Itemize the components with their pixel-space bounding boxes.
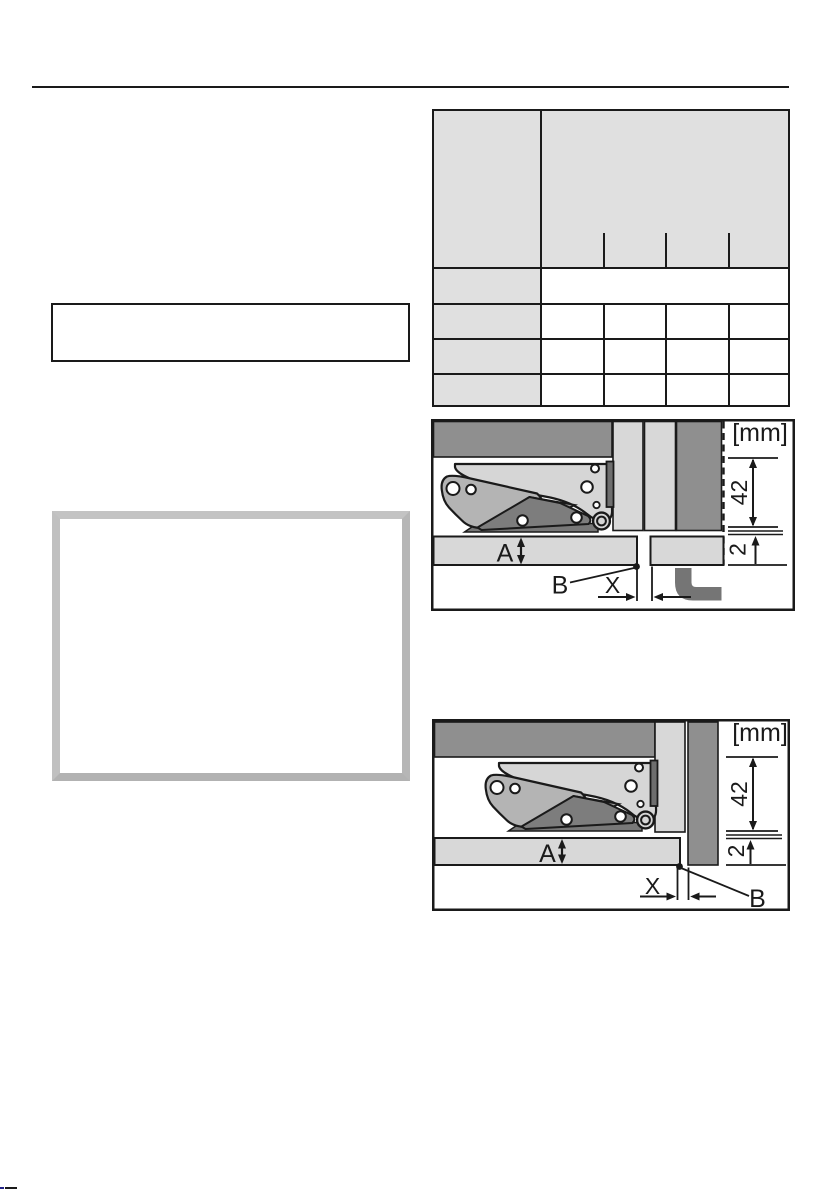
- svg-text:A: A: [539, 840, 556, 868]
- table-left-column: [434, 111, 540, 405]
- table-column-divider: [540, 111, 542, 405]
- svg-text:X: X: [645, 873, 660, 899]
- hinge-diagram-bottom: 42 2 [mm] A B X: [432, 719, 790, 911]
- svg-text:B: B: [552, 572, 569, 600]
- hinge-assembly: [486, 761, 658, 832]
- spec-table: [432, 109, 790, 407]
- svg-text:42: 42: [726, 480, 752, 506]
- appliance-door-panel-2: [645, 422, 676, 531]
- table-body-column-line: [665, 305, 667, 405]
- appliance-door-panel: [613, 422, 643, 531]
- corner-mark-blue: [0, 1187, 4, 1189]
- cabinet-top-panel: [435, 722, 656, 757]
- table-header-tick: [728, 233, 730, 267]
- base-panel-right: [651, 537, 724, 566]
- hinge-assembly: [442, 462, 614, 533]
- table-header-tick: [603, 233, 605, 267]
- svg-text:2: 2: [723, 845, 749, 858]
- table-row-line: [434, 373, 788, 375]
- furniture-door-panel: [677, 422, 722, 531]
- appliance-door-panel: [655, 722, 685, 832]
- table-row-line: [434, 267, 788, 269]
- image-frame: [52, 511, 410, 781]
- svg-text:2: 2: [725, 543, 751, 556]
- note-box: [51, 303, 410, 362]
- table-row-line: [434, 303, 788, 305]
- header-rule: [32, 86, 789, 88]
- unit-label: [mm]: [732, 719, 788, 747]
- hinge-diagram-top: 42 2 [mm] A B X: [431, 419, 795, 611]
- cabinet-top-panel: [434, 422, 613, 458]
- manual-page: 42 2 [mm] A B X: [0, 0, 840, 1192]
- base-panel-left: [434, 537, 638, 566]
- table-body-column-line: [603, 305, 605, 405]
- corner-mark-black: [5, 1187, 17, 1189]
- furniture-door-panel: [688, 722, 718, 865]
- table-header-tick: [665, 233, 667, 267]
- unit-label: [mm]: [732, 419, 788, 447]
- base-panel: [435, 838, 681, 865]
- svg-text:42: 42: [726, 781, 752, 807]
- svg-text:A: A: [497, 540, 514, 568]
- table-body-column-line: [728, 305, 730, 405]
- svg-text:B: B: [749, 885, 766, 911]
- table-row-line: [434, 338, 788, 340]
- svg-text:X: X: [605, 572, 620, 598]
- dimension-a: A: [497, 538, 525, 568]
- dimension-a: A: [539, 839, 566, 868]
